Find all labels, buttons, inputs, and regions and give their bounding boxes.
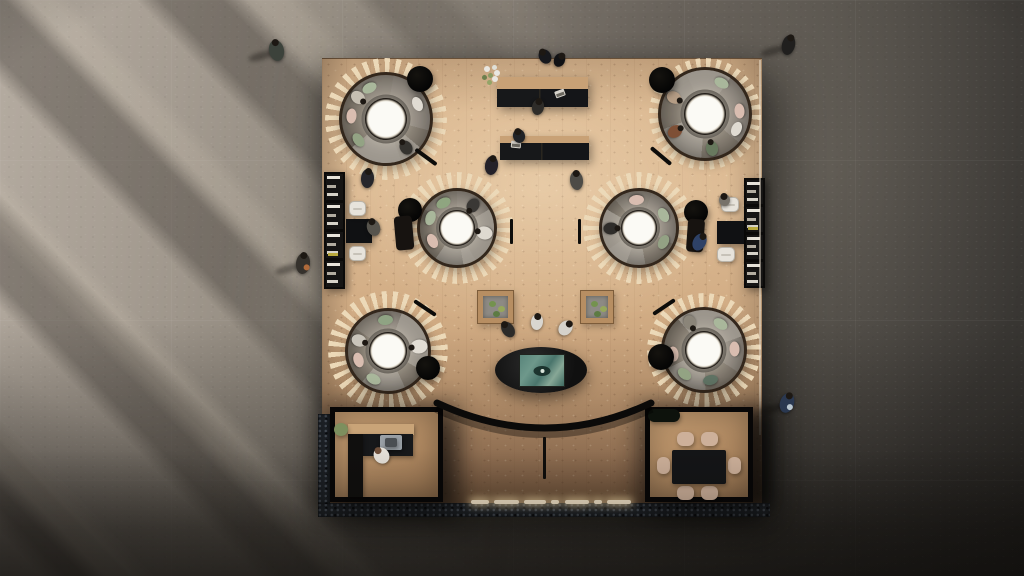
dining-chair xyxy=(677,432,694,446)
flower-bouquet xyxy=(482,75,487,80)
dining-chair xyxy=(657,457,670,474)
plant-sprig xyxy=(600,306,607,312)
person-accent xyxy=(303,264,310,271)
dining-table xyxy=(672,450,726,484)
person-head xyxy=(514,127,523,136)
book-spine xyxy=(747,272,756,275)
floor-light-strip xyxy=(551,500,559,504)
book-spine-accent xyxy=(748,227,758,230)
floor-lamp xyxy=(510,219,513,244)
book-spine xyxy=(327,205,340,208)
chair xyxy=(349,246,366,261)
flower-bouquet xyxy=(492,76,498,82)
floor-lamp xyxy=(543,437,546,479)
book-spine xyxy=(327,243,336,246)
round-side-table xyxy=(648,344,674,370)
book-spine xyxy=(747,218,756,221)
plant-sprig xyxy=(591,301,598,307)
gravel-border xyxy=(318,503,770,517)
person-head xyxy=(721,193,728,200)
person xyxy=(360,168,374,188)
side-table xyxy=(717,221,744,244)
round-side-table xyxy=(416,356,440,380)
bookshelf xyxy=(324,172,345,289)
meeting-room xyxy=(645,407,753,502)
screen-eye xyxy=(534,366,551,376)
person-head xyxy=(300,251,308,259)
chair xyxy=(717,247,735,262)
book-spine xyxy=(327,193,338,196)
pod-person-head xyxy=(474,228,481,235)
book-spine xyxy=(327,176,340,179)
person-head xyxy=(571,169,579,177)
bookshelf-compartment xyxy=(326,203,343,229)
book-spine xyxy=(327,222,338,225)
bookshelf xyxy=(744,178,765,288)
dining-chair xyxy=(701,432,718,446)
person-head xyxy=(556,51,565,60)
pod-skylight-table xyxy=(369,332,407,370)
book-spine xyxy=(747,209,760,212)
floor-lamp xyxy=(578,219,581,244)
dining-chair xyxy=(677,486,694,500)
dining-chair xyxy=(728,457,741,474)
person-head xyxy=(534,313,542,321)
book-spine xyxy=(747,264,760,267)
book-spine xyxy=(747,182,760,185)
person-head xyxy=(488,154,496,162)
book-spine xyxy=(747,280,758,283)
pod-skylight-table xyxy=(621,210,657,246)
gravel-border xyxy=(318,414,330,504)
floor-light-strip xyxy=(471,500,489,504)
person-head xyxy=(697,232,706,241)
pod-skylight-table xyxy=(439,210,475,246)
media-screen xyxy=(519,354,565,387)
person-head xyxy=(786,33,794,41)
person xyxy=(719,194,730,206)
plant xyxy=(334,423,348,436)
flower-bouquet xyxy=(487,80,492,85)
planter-mat xyxy=(477,290,514,324)
book-spine xyxy=(327,234,340,237)
book-spine xyxy=(747,245,756,248)
pod-skylight-table xyxy=(365,98,407,140)
person-head xyxy=(270,38,278,46)
dining-chair xyxy=(701,486,718,500)
bookshelf-compartment xyxy=(326,261,343,287)
person-head xyxy=(535,98,543,106)
pod-person-head xyxy=(398,138,406,146)
chair xyxy=(349,201,366,216)
floor-light-strip xyxy=(524,500,546,504)
chair-seam xyxy=(721,254,731,256)
book-spine-accent xyxy=(328,253,338,256)
floor-light-strip xyxy=(565,500,589,504)
pod-skylight-table xyxy=(685,331,723,369)
book-spine xyxy=(747,190,756,193)
book-spine xyxy=(327,272,336,275)
pod-skylight-table xyxy=(684,93,726,135)
lounge-chair xyxy=(394,215,415,250)
book-spine xyxy=(327,280,338,283)
book-spine xyxy=(747,198,758,201)
pod-person-head xyxy=(408,344,415,351)
floor-light-strip xyxy=(494,500,519,504)
bookshelf-compartment xyxy=(326,232,343,258)
round-side-table xyxy=(407,66,433,92)
plant-sprig xyxy=(489,301,496,307)
laptop-keys xyxy=(512,144,520,148)
screen-eye-pupil xyxy=(540,369,544,373)
cabinet-column xyxy=(348,434,363,497)
planter-mat xyxy=(580,290,614,324)
book-spine xyxy=(747,237,760,240)
floor-light-strip xyxy=(594,500,602,504)
flower-bouquet xyxy=(484,66,490,72)
chair-seam xyxy=(353,208,362,210)
platform-edge-highlight xyxy=(759,60,761,435)
plant-shelf xyxy=(648,409,680,422)
bookshelf-compartment xyxy=(326,174,343,200)
flower-bouquet xyxy=(492,65,497,70)
book-spine xyxy=(327,263,340,266)
round-side-table xyxy=(649,67,675,93)
chair-seam xyxy=(353,253,362,255)
book-spine xyxy=(327,185,336,188)
book-spine xyxy=(327,214,336,217)
sink-basin xyxy=(385,438,397,447)
aerial-lounge-render xyxy=(0,0,1024,576)
person-head xyxy=(364,167,371,174)
book-spine xyxy=(747,252,758,255)
floor-light-strip xyxy=(607,500,631,504)
